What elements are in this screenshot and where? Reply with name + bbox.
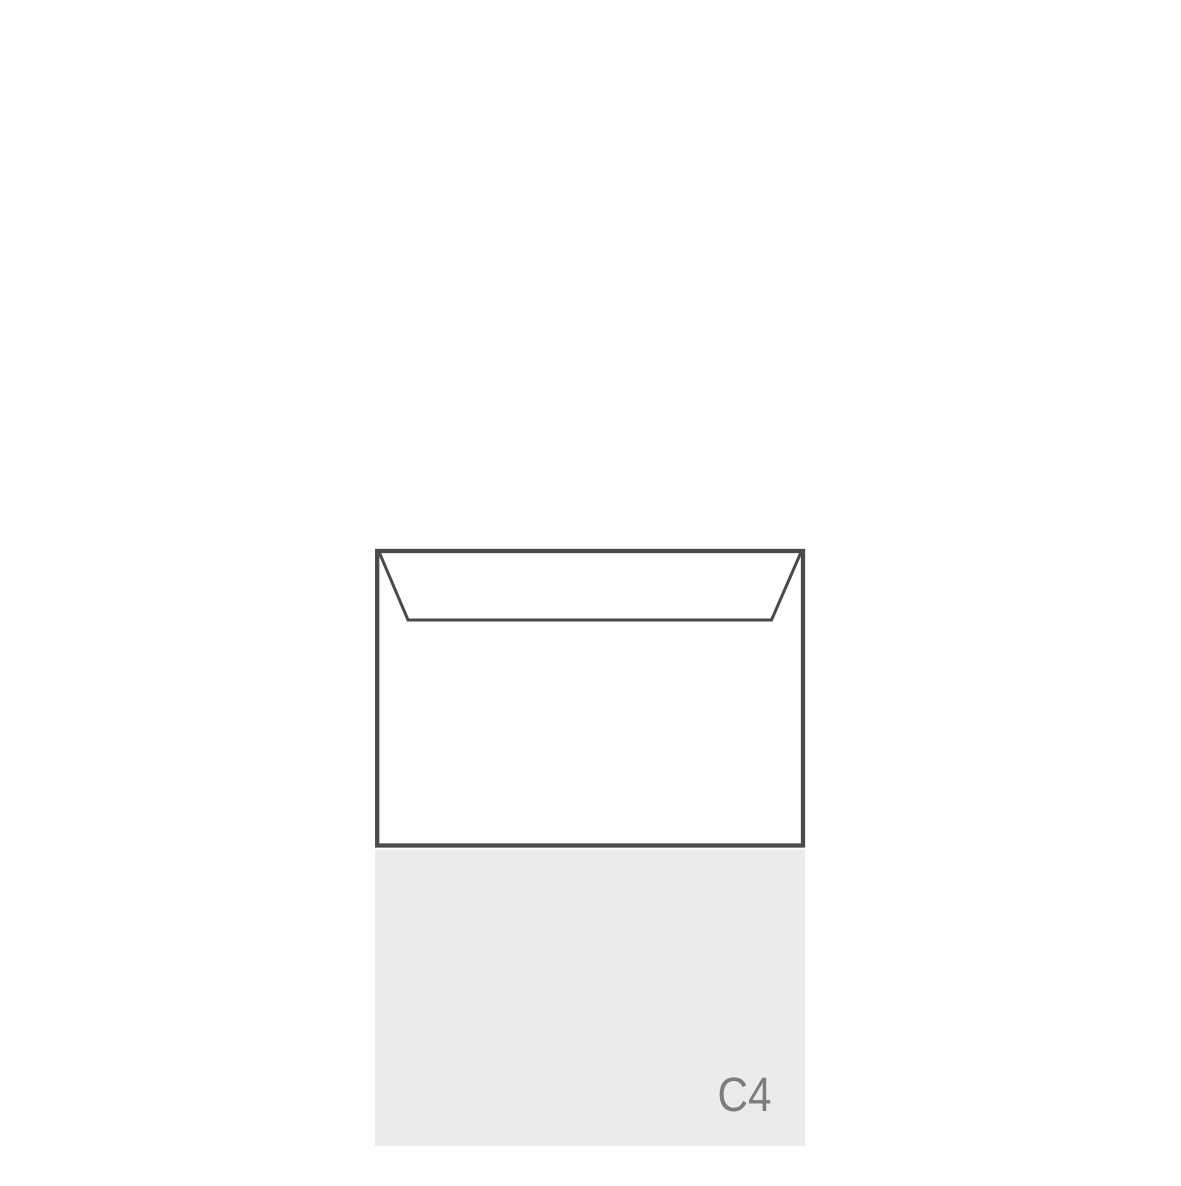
svg-text:C4: C4 (718, 1069, 772, 1122)
